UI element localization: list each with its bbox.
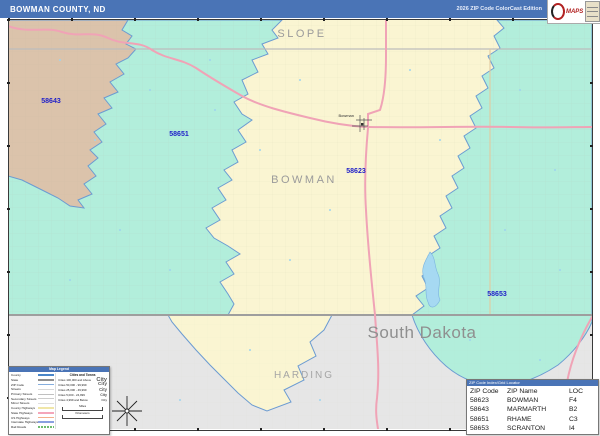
county-label-bowman: BOWMAN — [271, 174, 337, 186]
marketmaps-logo: MAPS — [547, 0, 600, 24]
zip-table-cell: 58653 — [470, 424, 507, 433]
zip-table-cell: F4 — [569, 396, 595, 405]
state-hwy-sample — [38, 412, 54, 414]
zip-table-cell: 58651 — [470, 415, 507, 424]
zip-table-cell: SCRANTON — [507, 424, 569, 433]
bowman-town-dot — [361, 123, 363, 125]
zip-line-sample — [38, 384, 54, 386]
header-bar: BOWMAN COUNTY, ND 2026 ZIP Code ColorCas… — [0, 0, 548, 18]
zip-label-58643: 58643 — [41, 98, 61, 105]
zip-label-58653: 58653 — [487, 291, 507, 298]
zip-table-cell: BOWMAN — [507, 396, 569, 405]
state-line-sample — [38, 379, 54, 381]
legend-panel: Map Legend County State ZIP Code Streets… — [8, 366, 110, 435]
town-label-bowman: Bowman — [338, 113, 354, 118]
legend-cities-column: Cities and Towns Cities 100,000 and Abov… — [55, 373, 107, 429]
state-label-south-dakota: South Dakota — [367, 323, 476, 342]
county-label-slope: SLOPE — [277, 28, 326, 40]
legend-city-item: Cities 25,000 - 49,999City — [58, 387, 107, 392]
logo-globe-icon — [551, 3, 565, 20]
page-title: BOWMAN COUNTY, ND — [0, 5, 106, 14]
edition-label: 2026 ZIP Code ColorCast Edition — [457, 6, 548, 12]
secondary-streets-sample — [38, 398, 54, 399]
us-hwy-sample — [38, 417, 54, 419]
km-scale-bar — [62, 415, 103, 419]
zip-table-cell: I4 — [569, 424, 595, 433]
scale-bars: Miles Kilometers — [58, 404, 107, 419]
county-line-sample — [38, 374, 54, 376]
logo-tag-box — [585, 1, 600, 22]
zip-table-header: LOC — [569, 387, 595, 396]
zip-label-58623: 58623 — [346, 168, 366, 175]
zip-table-cell: C3 — [569, 415, 595, 424]
legend-city-item: Cities 4,999 and BelowCity — [58, 398, 107, 403]
streets-sample — [38, 389, 54, 390]
map-page: SLOPE BOWMAN HARDING South Dakota 58643 … — [0, 0, 600, 436]
county-hwy-sample — [38, 407, 54, 409]
zip-label-58651: 58651 — [169, 131, 189, 138]
section-grid — [8, 20, 592, 315]
interstate-sample — [38, 421, 54, 423]
county-label-harding: HARDING — [274, 370, 334, 381]
legend-item: Rail Roads — [11, 425, 54, 430]
zip-table-header: ZIP Name — [507, 387, 569, 396]
primary-streets-sample — [38, 394, 54, 395]
zip-index-table: ZIP Code ZIP Name LOC 58623 BOWMAN F4 58… — [467, 386, 598, 433]
zip-table-cell: MARMARTH — [507, 405, 569, 414]
zip-table-cell: B2 — [569, 405, 595, 414]
zip-table-cell: RHAME — [507, 415, 569, 424]
minor-streets-sample — [38, 403, 54, 404]
railroad-sample — [38, 426, 54, 428]
zip-table-header: ZIP Code — [470, 387, 507, 396]
zip-table-cell: 58643 — [470, 405, 507, 414]
zip-index-panel: ZIP Code Index/Grid Locator ZIP Code ZIP… — [466, 379, 599, 435]
zip-table-cell: 58623 — [470, 396, 507, 405]
logo-maps-text: MAPS — [566, 9, 583, 15]
us-highway-12-east — [368, 127, 592, 128]
legend-line-items: County State ZIP Code Streets Primary St… — [11, 373, 54, 429]
legend-city-item: Cities 5,000 - 24,999City — [58, 393, 107, 398]
